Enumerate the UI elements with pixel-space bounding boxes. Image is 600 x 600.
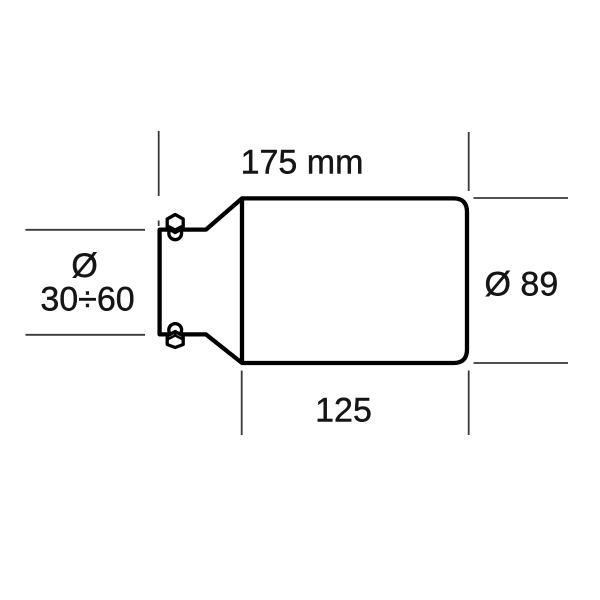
svg-text:175 mm: 175 mm (241, 143, 364, 181)
svg-text:Ø: Ø (71, 247, 97, 285)
svg-text:Ø 89: Ø 89 (485, 266, 559, 304)
svg-text:125: 125 (315, 392, 372, 430)
svg-text:30÷60: 30÷60 (40, 280, 134, 318)
